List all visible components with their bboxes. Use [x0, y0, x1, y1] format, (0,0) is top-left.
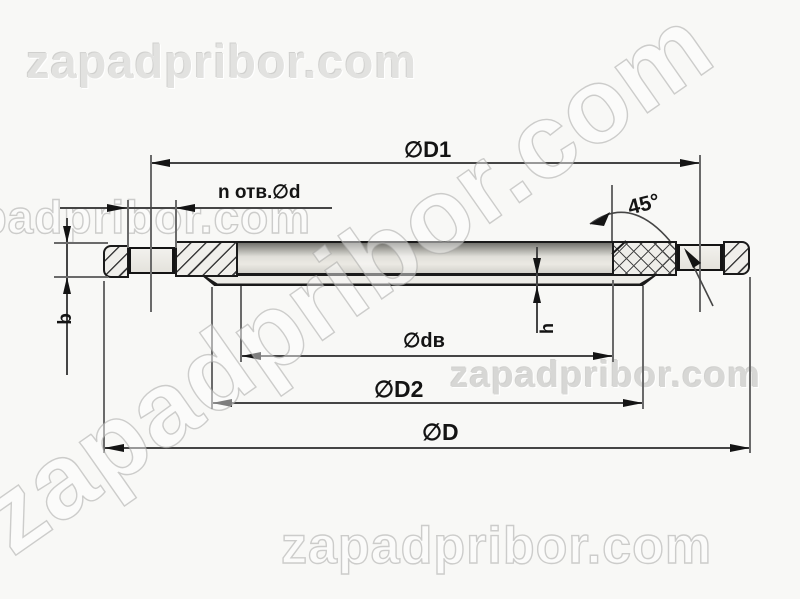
drawing-canvas: zapadpribor.com zapadpribor.com zapadpri…	[0, 0, 800, 599]
chamfer-arc-and-leaders	[0, 0, 800, 599]
